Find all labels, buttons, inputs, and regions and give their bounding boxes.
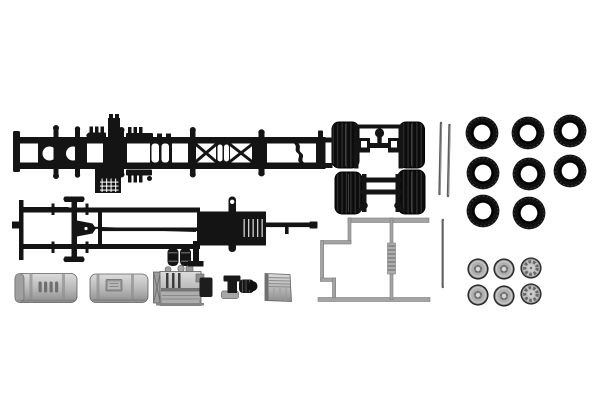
hitch-ball (375, 128, 384, 137)
exhaust-coupling (222, 276, 258, 299)
engine-block (154, 265, 213, 305)
tire (467, 157, 500, 190)
ribbed-cone (239, 280, 258, 294)
wheel-rim-toothed (520, 283, 541, 304)
wheel-rim-plain (467, 284, 488, 305)
tire (554, 115, 587, 148)
driveshaft (102, 228, 198, 232)
output-shaft (266, 223, 312, 228)
tandem-axle-unit-upper (325, 122, 425, 169)
fuel-tank-ribbed (15, 274, 77, 303)
frame-rail (23, 208, 200, 213)
tire (554, 155, 587, 188)
axle-rod (443, 220, 444, 287)
wheel-rim-plain (493, 258, 514, 279)
trailer-frame-sprue (318, 218, 430, 302)
wheel-grid (467, 257, 541, 306)
sprue-comb-top-2 (126, 127, 153, 139)
sprue-grid-box (95, 169, 121, 193)
axle-rod (440, 123, 442, 194)
threaded-segment (388, 243, 396, 274)
product-photo (0, 0, 600, 420)
front-crossmember-plate (13, 131, 20, 172)
wheel-rim-plain (467, 258, 488, 279)
axle-rod (448, 125, 450, 196)
wheel-rim-toothed (520, 257, 541, 278)
frame-rear-end (316, 137, 326, 169)
sprue-comb-bottom (126, 170, 152, 183)
mount-eyelet (229, 197, 237, 253)
tire (513, 197, 546, 230)
flywheel-housing (200, 278, 213, 298)
kit-photo-canvas (0, 0, 600, 420)
tire (466, 117, 499, 150)
sprue-comb-top-1 (86, 127, 106, 139)
fuel-tank-plain (90, 274, 148, 303)
steering-gearbox (77, 221, 96, 237)
rod-set (440, 123, 451, 287)
tire (512, 117, 545, 150)
tire-grid (466, 115, 587, 230)
sprue-block-top (108, 114, 120, 139)
tank-filler-panel (106, 280, 122, 292)
battery-box (265, 274, 292, 302)
wheel-rim-plain (493, 285, 514, 306)
chassis-frame-bottom (12, 196, 318, 266)
chassis-frame-top (13, 114, 326, 193)
tire (467, 195, 500, 228)
tandem-axle-unit-lower (335, 170, 425, 214)
tire (513, 158, 546, 191)
